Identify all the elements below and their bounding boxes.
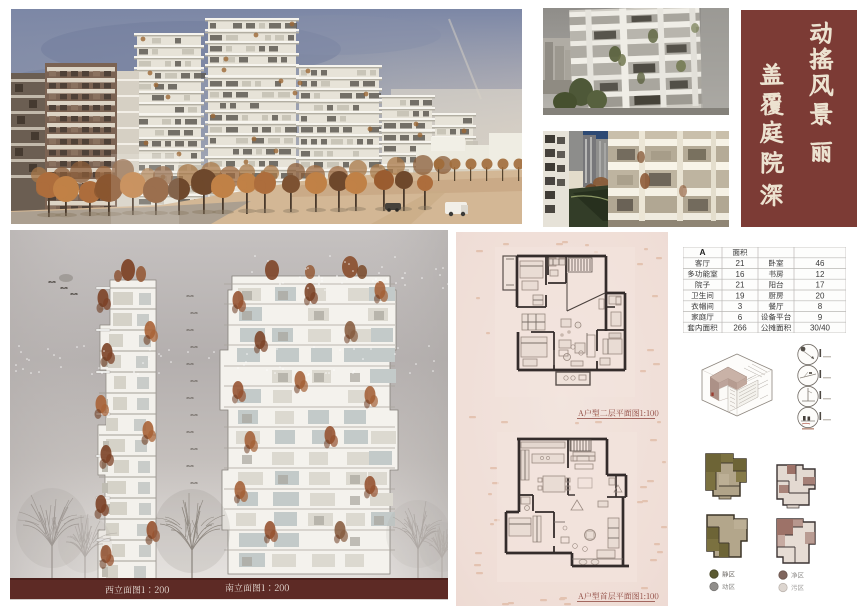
svg-text:12: 12 (816, 270, 825, 279)
svg-text:30/40: 30/40 (810, 324, 831, 333)
svg-text:20: 20 (816, 291, 825, 300)
svg-text:21: 21 (736, 259, 745, 268)
svg-text:9: 9 (818, 313, 823, 322)
svg-text:16: 16 (736, 270, 745, 279)
svg-text:46: 46 (816, 259, 825, 268)
svg-text:17: 17 (816, 281, 825, 290)
svg-text:A: A (699, 247, 705, 257)
svg-text:6: 6 (738, 313, 743, 322)
svg-text:3: 3 (738, 302, 743, 311)
svg-text:8: 8 (818, 302, 823, 311)
svg-text:21: 21 (736, 281, 745, 290)
svg-text:266: 266 (733, 324, 747, 333)
svg-text:19: 19 (736, 291, 745, 300)
